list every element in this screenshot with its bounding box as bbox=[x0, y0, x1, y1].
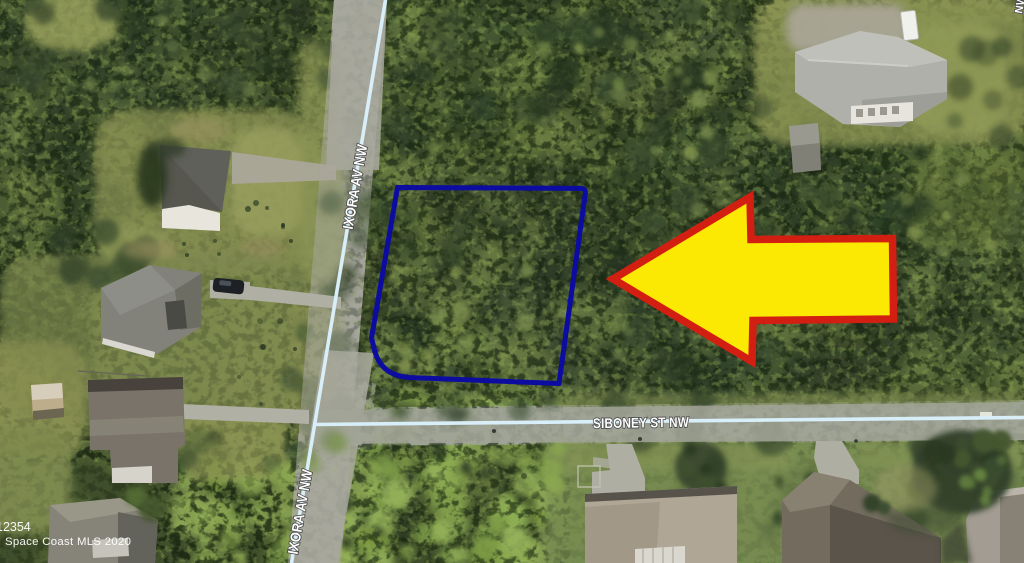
svg-text:Space Coast MLS 2020: Space Coast MLS 2020 bbox=[5, 536, 131, 548]
svg-text:NW: NW bbox=[1013, 0, 1024, 15]
svg-text:SIBONEY ST NW: SIBONEY ST NW bbox=[593, 414, 690, 431]
svg-text:12354: 12354 bbox=[0, 520, 31, 534]
